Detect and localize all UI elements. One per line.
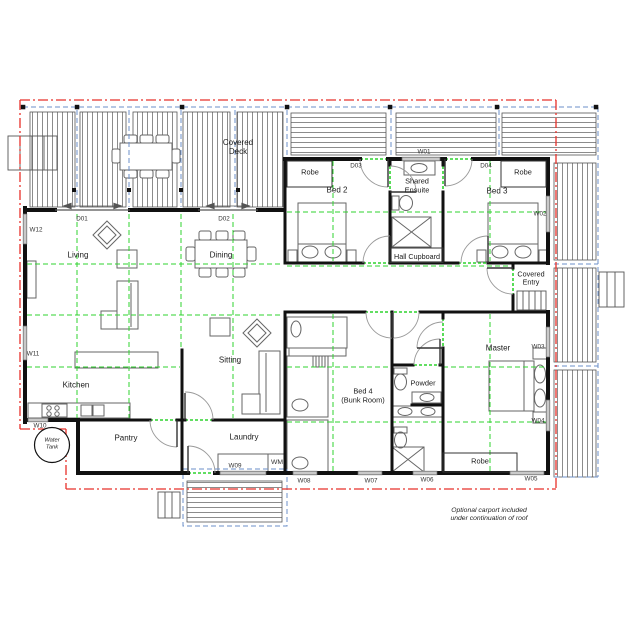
floor-plan-page: Covered Deck Robe Bed 2 Shared Ensuite B… — [0, 0, 628, 628]
water-tank-symbol — [35, 428, 70, 463]
floor-plan-drawing — [0, 0, 628, 628]
